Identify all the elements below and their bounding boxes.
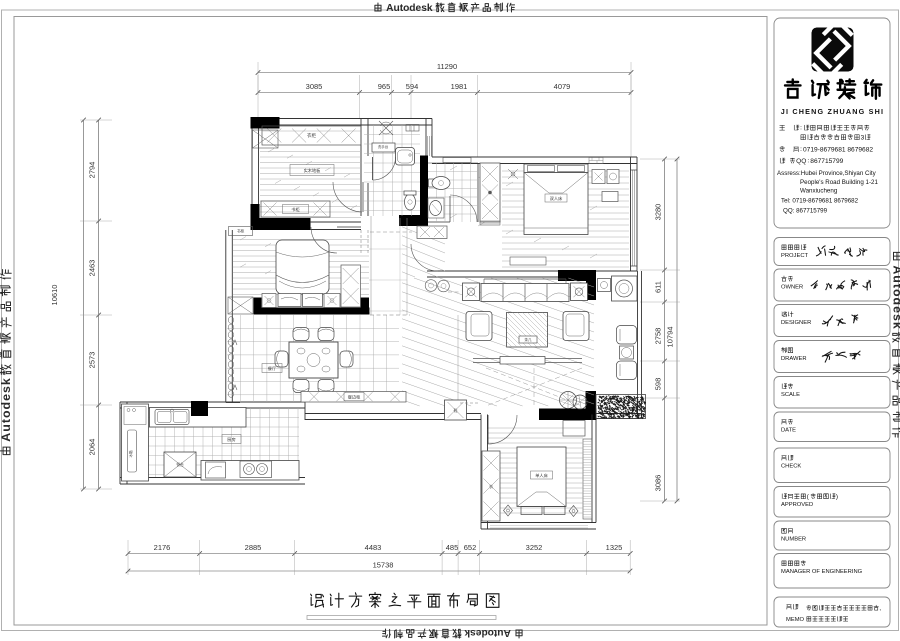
svg-text:867715799: 867715799 <box>810 158 843 165</box>
svg-text:3086: 3086 <box>654 475 663 492</box>
svg-text:书柜: 书柜 <box>291 206 299 213</box>
svg-text:书柜: 书柜 <box>237 229 245 234</box>
svg-text:0719-8679681 8679682: 0719-8679681 8679682 <box>803 147 873 154</box>
svg-text:3252: 3252 <box>526 543 543 552</box>
svg-text:Autodesk: Autodesk <box>464 627 511 638</box>
svg-text:Wanxiucheng: Wanxiucheng <box>800 188 838 195</box>
svg-text:厨房: 厨房 <box>227 436 235 443</box>
svg-text:NUMBER: NUMBER <box>781 537 806 543</box>
svg-text:衣柜: 衣柜 <box>307 132 316 139</box>
svg-text:11290: 11290 <box>437 62 457 71</box>
svg-text:652: 652 <box>464 543 477 552</box>
svg-text:2463: 2463 <box>88 260 97 277</box>
svg-text:2573: 2573 <box>88 352 97 369</box>
svg-text:3280: 3280 <box>654 204 663 221</box>
svg-text:QQ: 867715799: QQ: 867715799 <box>783 208 828 215</box>
svg-text:餐厅: 餐厅 <box>268 365 276 372</box>
svg-text:Autodesk: Autodesk <box>0 377 13 441</box>
svg-text:双人床: 双人床 <box>550 195 563 202</box>
svg-text:15738: 15738 <box>373 561 394 570</box>
svg-text:2794: 2794 <box>88 162 97 179</box>
svg-text:Autodesk: Autodesk <box>891 265 900 329</box>
svg-text:598: 598 <box>654 378 663 391</box>
svg-text:4079: 4079 <box>554 82 571 91</box>
svg-text:2885: 2885 <box>245 543 262 552</box>
svg-text:QQ: QQ <box>796 158 806 165</box>
svg-text:DATE: DATE <box>781 428 796 434</box>
svg-text:鞋: 鞋 <box>454 407 458 413</box>
svg-text:1325: 1325 <box>606 543 623 552</box>
svg-text:MANAGER OF ENGINEERING: MANAGER OF ENGINEERING <box>781 569 863 575</box>
svg-text:衣: 衣 <box>489 483 493 489</box>
svg-text:4483: 4483 <box>365 543 382 552</box>
svg-text:2064: 2064 <box>88 439 97 456</box>
svg-text:2176: 2176 <box>154 543 171 552</box>
svg-text:Assress:Hubei Province,Shiyan: Assress:Hubei Province,Shiyan City <box>777 170 877 177</box>
svg-text:594: 594 <box>406 82 419 91</box>
svg-text:SCALE: SCALE <box>781 392 800 398</box>
svg-text:): ) <box>836 494 838 501</box>
svg-text:洗手台: 洗手台 <box>378 144 389 149</box>
svg-text:10610: 10610 <box>50 285 59 306</box>
svg-text:MEMO: MEMO <box>786 617 805 623</box>
svg-text:3: 3 <box>861 135 865 142</box>
svg-text:611: 611 <box>654 281 663 293</box>
svg-text:实木地板: 实木地板 <box>304 167 322 174</box>
svg-text:DESIGNER: DESIGNER <box>781 320 811 326</box>
svg-text:DRAWER: DRAWER <box>781 356 807 362</box>
svg-text:JI CHENG ZHUANG SHI: JI CHENG ZHUANG SHI <box>781 107 884 116</box>
svg-text:1981: 1981 <box>451 82 468 91</box>
svg-text:冰箱: 冰箱 <box>128 450 133 458</box>
svg-text:Autodesk: Autodesk <box>386 3 433 14</box>
svg-text:APPROVED: APPROVED <box>781 502 813 508</box>
svg-text:单人床: 单人床 <box>535 472 548 479</box>
svg-text:485: 485 <box>446 543 459 552</box>
svg-text:10794: 10794 <box>666 327 675 348</box>
svg-text:People's Road Building 1-21: People's Road Building 1-21 <box>800 179 878 186</box>
svg-text:CHECK: CHECK <box>781 464 801 470</box>
svg-text:965: 965 <box>378 82 391 91</box>
svg-text:餐台: 餐台 <box>176 462 184 467</box>
svg-text:Tel: 0719-8679681 8679682: Tel: 0719-8679681 8679682 <box>781 198 859 205</box>
svg-text:2758: 2758 <box>654 328 663 345</box>
svg-text:餐边柜: 餐边柜 <box>348 394 361 401</box>
svg-text:PROJECT: PROJECT <box>781 253 809 259</box>
svg-text:3085: 3085 <box>306 82 323 91</box>
svg-text:茶几: 茶几 <box>524 337 532 342</box>
svg-text:OWNER: OWNER <box>781 285 803 291</box>
